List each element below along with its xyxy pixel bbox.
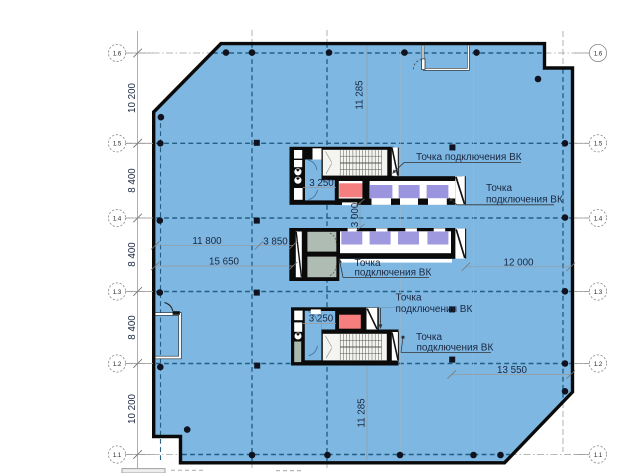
svg-text:1.2: 1.2: [113, 362, 122, 368]
svg-text:1.6: 1.6: [113, 51, 122, 57]
svg-text:1.5: 1.5: [594, 142, 603, 148]
svg-text:8 400: 8 400: [127, 168, 138, 193]
svg-text:3 250: 3 250: [309, 178, 334, 189]
svg-text:13 550: 13 550: [497, 365, 528, 376]
svg-text:1.5: 1.5: [113, 142, 122, 148]
svg-text:подключения ВК: подключения ВК: [417, 342, 494, 353]
svg-text:Точка: Точка: [486, 183, 512, 194]
svg-text:1.3: 1.3: [594, 290, 603, 296]
svg-text:3 000: 3 000: [350, 202, 361, 227]
svg-text:8 400: 8 400: [127, 242, 138, 267]
svg-text:1.1: 1.1: [594, 453, 603, 459]
svg-text:1.1: 1.1: [113, 453, 122, 459]
svg-text:15 650: 15 650: [209, 256, 240, 267]
svg-text:11 285: 11 285: [355, 80, 366, 110]
svg-text:подключения ВК: подключения ВК: [486, 195, 563, 206]
svg-text:8 400: 8 400: [127, 315, 138, 340]
svg-text:Точка: Точка: [396, 293, 422, 304]
svg-text:1.2: 1.2: [594, 362, 603, 368]
svg-text:1.4: 1.4: [594, 216, 603, 222]
svg-text:12 000: 12 000: [504, 257, 535, 268]
svg-text:10 200: 10 200: [127, 82, 138, 113]
svg-text:1.4: 1.4: [113, 216, 122, 222]
svg-text:11 285: 11 285: [357, 398, 368, 428]
svg-text:Точка: Точка: [416, 332, 442, 343]
svg-text:1.6: 1.6: [594, 51, 603, 57]
svg-text:подключения ВК: подключения ВК: [396, 304, 473, 315]
svg-text:1.3: 1.3: [113, 290, 122, 296]
svg-text:3 250: 3 250: [309, 314, 334, 325]
svg-text:Точка подключения ВК: Точка подключения ВК: [416, 152, 522, 163]
svg-text:11 800: 11 800: [192, 236, 222, 247]
svg-text:3 850: 3 850: [263, 237, 288, 248]
svg-text:подключения ВК: подключения ВК: [355, 268, 432, 279]
svg-text:10 200: 10 200: [127, 393, 138, 424]
